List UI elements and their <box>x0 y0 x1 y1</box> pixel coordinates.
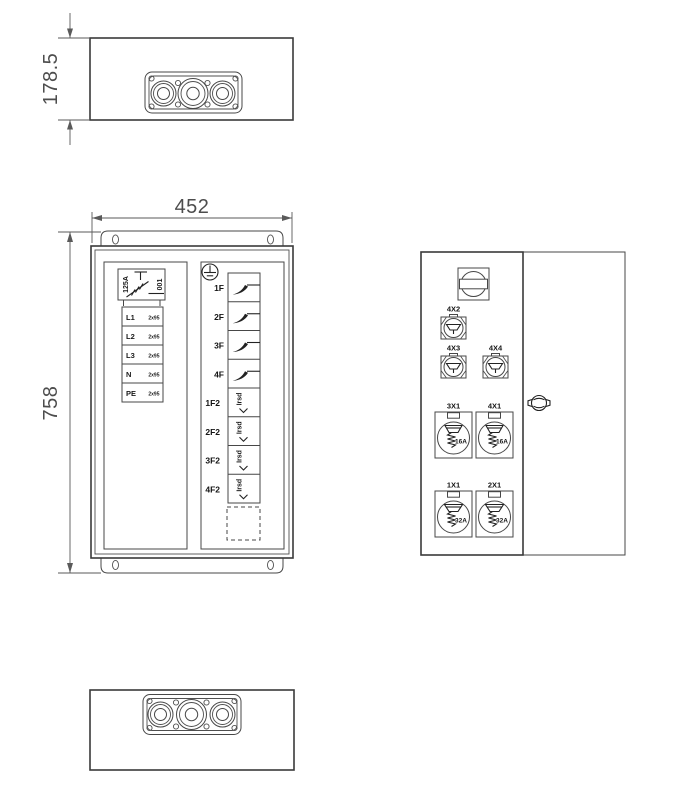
cable-gland-icon <box>148 702 173 727</box>
socket-label: 4X1 <box>488 402 501 411</box>
terminal-label: L2 <box>126 332 135 341</box>
mounting-slot-icon <box>268 235 274 244</box>
cable-gland-icon <box>151 81 176 106</box>
mounting-slot-icon <box>113 235 119 244</box>
dim-arrow-icon <box>67 29 73 39</box>
dim-top-height: 178.5 <box>40 13 90 145</box>
terminal-label: L3 <box>126 351 135 360</box>
dim-front-width: 452 <box>92 196 292 243</box>
front-view: 452 758 125A 0 <box>40 196 293 573</box>
socket-rating: 16A <box>455 439 467 446</box>
socket-label: 4X2 <box>447 305 460 314</box>
dim-front-width-label: 452 <box>175 196 210 218</box>
bottom-view <box>90 690 294 770</box>
mounting-slot-icon <box>268 560 274 569</box>
feeder-label: 2F <box>214 312 224 322</box>
rcd-text: Irsd <box>237 479 244 492</box>
rcd-label: 2F2 <box>205 427 220 437</box>
dim-arrow-icon <box>282 215 292 221</box>
rcd-label: 4F2 <box>205 484 220 494</box>
main-switch-rating: 125A <box>123 276 130 293</box>
socket-label: 2X1 <box>488 481 501 490</box>
dim-arrow-icon <box>67 563 73 573</box>
terminal-label: PE <box>126 389 136 398</box>
terminal-spec: 2x95 <box>148 392 159 398</box>
terminal-label: N <box>126 370 131 379</box>
drawing-canvas: 178.5 452 758 <box>0 0 693 800</box>
terminal-label: L1 <box>126 313 135 322</box>
socket-label: 1X1 <box>447 481 460 490</box>
terminal-spec: 2x95 <box>148 316 159 322</box>
rcd-text: Irsd <box>237 421 244 434</box>
top-view: 178.5 <box>40 13 293 145</box>
dim-arrow-icon <box>67 120 73 130</box>
cable-gland-plate-icon <box>143 695 241 735</box>
socket-rating: 16A <box>496 439 508 446</box>
mounting-tab-bottom <box>101 557 283 573</box>
front-cabinet <box>91 246 293 558</box>
dim-top-height-label: 178.5 <box>40 53 62 106</box>
socket-tab <box>489 413 501 419</box>
terminal-spec: 2x95 <box>148 335 159 341</box>
rcd-text: Irsd <box>237 393 244 406</box>
rcd-label: 1F2 <box>205 398 220 408</box>
cable-gland-icon <box>210 702 235 727</box>
mounting-slot-icon <box>113 560 119 569</box>
main-switch-code: 001 <box>157 279 164 291</box>
socket-label: 3X1 <box>447 402 460 411</box>
cable-gland-plate-icon <box>145 72 242 113</box>
side-view: 4X2 4X3 4X4 3X1 <box>421 252 625 555</box>
dim-front-height-label: 758 <box>40 386 62 421</box>
cable-gland-icon <box>178 79 208 109</box>
dim-arrow-icon <box>92 215 102 221</box>
screw-icon <box>147 698 237 730</box>
bottom-view-enclosure <box>90 690 294 770</box>
feeder-label: 4F <box>214 369 224 379</box>
socket-label: 4X3 <box>447 344 460 353</box>
socket-rating: 32A <box>496 518 508 525</box>
socket-tab <box>448 492 460 498</box>
rcd-text: Irsd <box>237 450 244 463</box>
cable-gland-icon <box>177 700 207 730</box>
dim-arrow-icon <box>67 232 73 242</box>
mounting-tab-top <box>101 231 283 247</box>
socket-rating: 32A <box>455 518 467 525</box>
feeder-label: 3F <box>214 341 224 351</box>
rcd-label: 3F2 <box>205 456 220 466</box>
socket-tab <box>489 492 501 498</box>
terminal-spec: 2x95 <box>148 373 159 379</box>
socket-label: 4X4 <box>489 344 503 353</box>
distribution-board-drawing: 178.5 452 758 <box>0 0 693 800</box>
cable-gland-icon <box>210 81 235 106</box>
terminal-spec: 2x95 <box>148 354 159 360</box>
feeder-label: 1F <box>214 283 224 293</box>
socket-tab <box>448 413 460 419</box>
